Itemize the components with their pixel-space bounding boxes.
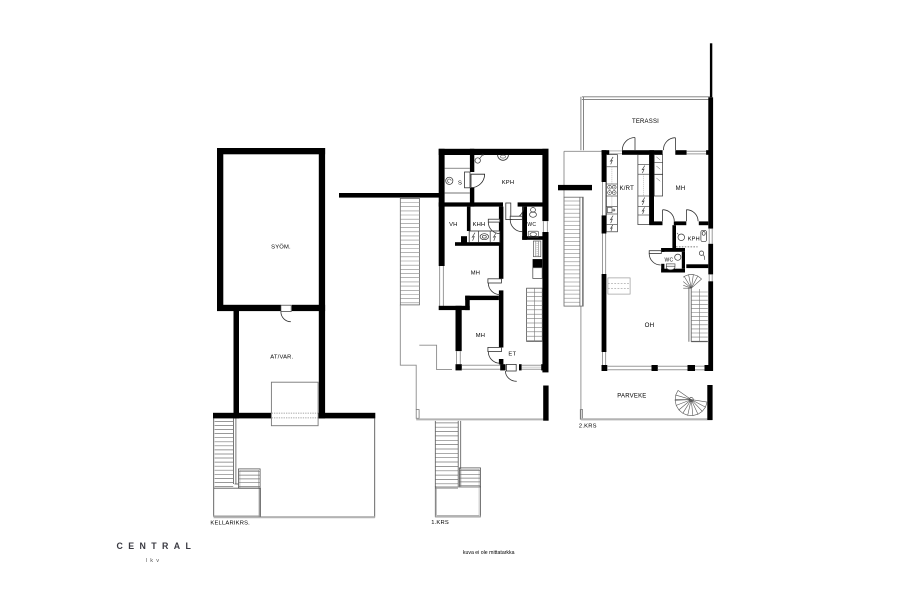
svg-text:KPH: KPH (502, 180, 515, 186)
svg-text:2.KRS: 2.KRS (579, 424, 597, 430)
svg-text:PARVEKE: PARVEKE (617, 393, 646, 399)
svg-text:S: S (458, 181, 462, 187)
svg-text:WC: WC (527, 222, 536, 228)
svg-text:VH: VH (449, 222, 457, 228)
svg-text:AT/VAR.: AT/VAR. (270, 354, 293, 360)
svg-text:K/RT: K/RT (620, 186, 634, 192)
svg-text:MH: MH (476, 333, 485, 339)
svg-text:KELLARIKRS.: KELLARIKRS. (210, 521, 250, 527)
svg-text:TERASSI: TERASSI (632, 119, 659, 125)
svg-text:OH: OH (645, 322, 655, 329)
svg-text:KHH: KHH (473, 222, 486, 228)
svg-text:lkv: lkv (146, 558, 162, 564)
svg-text:KPH: KPH (688, 236, 700, 242)
svg-text:kuva ei ole mittatarkka: kuva ei ole mittatarkka (463, 550, 515, 556)
svg-text:MH: MH (471, 270, 480, 276)
svg-text:MH: MH (676, 186, 686, 192)
svg-text:SYÖM.: SYÖM. (271, 243, 291, 250)
svg-text:ET: ET (508, 351, 516, 357)
svg-text:CENTRAL: CENTRAL (117, 541, 197, 551)
svg-text:1.KRS: 1.KRS (431, 520, 449, 526)
svg-text:WC: WC (665, 258, 674, 264)
